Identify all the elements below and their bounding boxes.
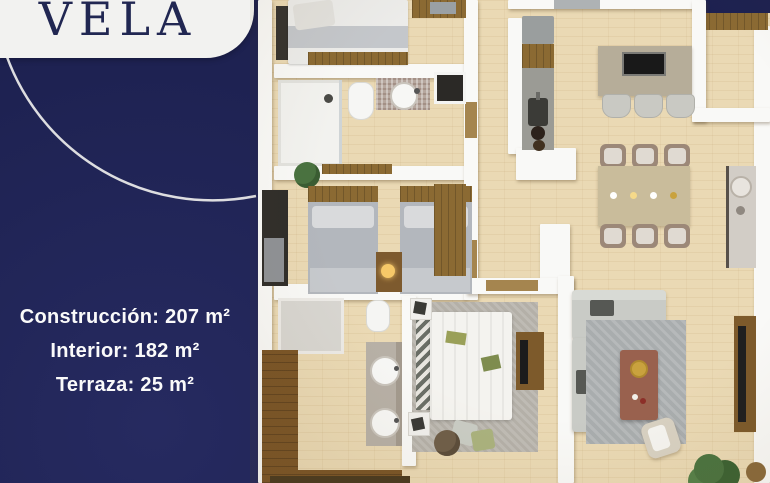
decorative-arc [0, 0, 258, 483]
coffee-maker-icon-1 [531, 126, 545, 140]
wall-right-outer [754, 26, 770, 483]
wall-top-kitchen [508, 0, 698, 9]
dining-chair-bottom-1 [600, 224, 626, 248]
wall-entry-horizontal [692, 108, 770, 122]
spec-interior: Interior: 182 m² [0, 334, 250, 368]
plant-icon-large [694, 454, 724, 483]
closet-wardrobe-left [262, 350, 298, 483]
spec-terrace: Terraza: 25 m² [0, 368, 250, 402]
floor-pillow-2 [470, 428, 495, 452]
master-tv-icon [520, 340, 528, 384]
dining-chair-top-3 [664, 144, 690, 168]
real-estate-flyer: VELA Construcción: 207 m² Interior: 182 … [0, 0, 770, 483]
gold-tray-icon [630, 360, 648, 378]
bathroom-dark-cabinet [434, 72, 466, 104]
kitchen-faucet-icon [536, 92, 540, 100]
twin-bed-a-fold [310, 268, 376, 292]
bar-stool-1 [602, 94, 631, 118]
sofa-back-edge [572, 290, 666, 300]
shower-head-icon [324, 94, 333, 103]
mirror-icon [730, 176, 752, 198]
bathroom-sink [390, 82, 418, 110]
shower-glass [339, 80, 342, 166]
twinroom-closet-panel [264, 238, 284, 282]
spec-construction: Construcción: 207 m² [0, 300, 250, 334]
kitchen-sink [528, 98, 548, 126]
entry-door [702, 13, 768, 30]
twin-bed-a-headboard [308, 186, 378, 202]
property-specs: Construcción: 207 m² Interior: 182 m² Te… [0, 300, 250, 402]
cooktop-icon [622, 52, 666, 76]
twin-bed-a-pillow [312, 206, 374, 228]
kitchen-fridge [522, 16, 554, 44]
closet-shadow-strip [270, 476, 410, 483]
master-green-throw-1 [445, 331, 466, 346]
bar-stool-3 [666, 94, 695, 118]
dining-chair-bottom-2 [632, 224, 658, 248]
toilet [348, 82, 374, 120]
bar-stool-2 [634, 94, 663, 118]
dining-plates [610, 192, 617, 199]
dining-chair-bottom-3 [664, 224, 690, 248]
master-faucet-1 [394, 366, 399, 371]
master-sink-2 [370, 408, 400, 438]
master-nightstand-top-deco [413, 301, 427, 315]
master-faucet-2 [394, 418, 399, 423]
bedroom1-dresser-tray [430, 2, 456, 14]
dining-chair-top-1 [600, 144, 626, 168]
master-sink-1 [370, 356, 400, 386]
kitchen-cabinet [522, 44, 554, 68]
balcony-bench [554, 0, 600, 9]
living-tv-icon [738, 326, 746, 422]
master-shower [278, 298, 344, 354]
wall-pillar-kitchen [516, 148, 576, 180]
plant-icon-twinroom [294, 162, 320, 188]
bedroom1-blanket [288, 26, 408, 48]
side-stool [746, 462, 766, 482]
bedroom1-foot-bench [308, 52, 408, 65]
wall-hallway-kitchen [508, 18, 522, 154]
door-threshold-master [486, 280, 538, 291]
sofa-cushion-1 [590, 300, 614, 316]
vase-icon [736, 206, 745, 215]
exterior-top-right [698, 0, 770, 13]
bathroom-faucet [414, 88, 420, 94]
shower-tray [278, 80, 342, 166]
lamp-glow-icon [381, 264, 395, 278]
master-toilet [366, 300, 390, 332]
twinroom-wardrobe [434, 184, 466, 276]
dining-chair-top-2 [632, 144, 658, 168]
twinroom-shelf [322, 164, 392, 174]
floorplan [250, 0, 770, 483]
master-pouf [434, 430, 460, 456]
coffee-maker-icon-2 [533, 140, 545, 151]
master-nightstand-bottom-deco [411, 417, 425, 431]
table-deco-dots [632, 394, 638, 400]
door-threshold-bathroom [465, 102, 477, 138]
